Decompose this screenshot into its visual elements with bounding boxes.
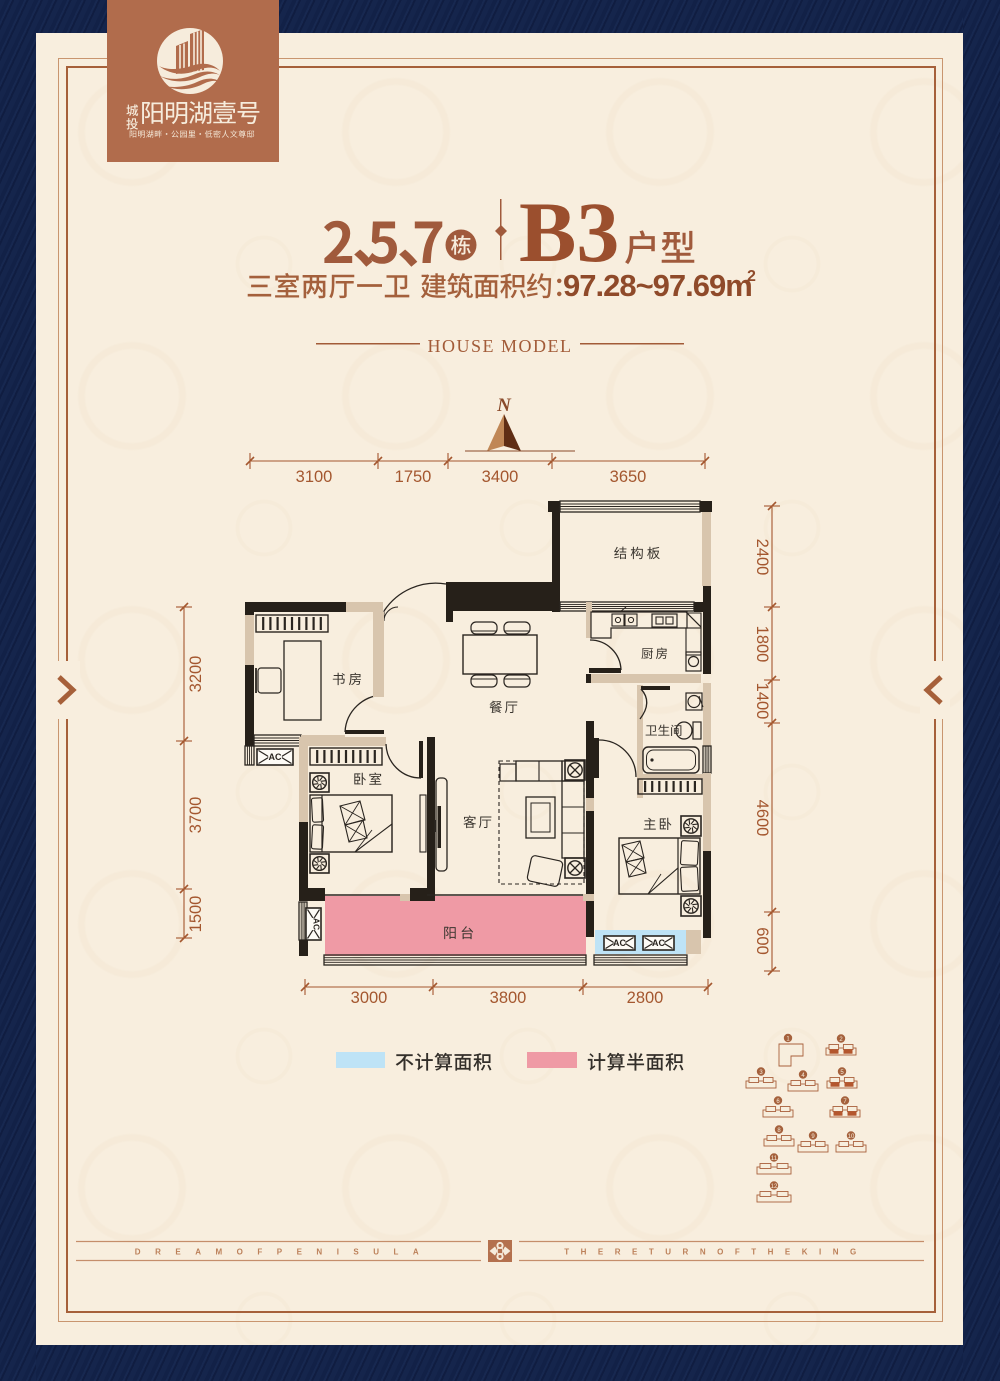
svg-text:1500: 1500 <box>187 896 205 933</box>
svg-text:2: 2 <box>747 268 756 285</box>
svg-text:AC: AC <box>652 938 665 948</box>
svg-text:12: 12 <box>771 1184 778 1190</box>
svg-text:B3: B3 <box>519 184 619 280</box>
svg-text:AC: AC <box>312 918 322 930</box>
svg-text:3650: 3650 <box>610 468 647 486</box>
svg-text:4600: 4600 <box>753 800 771 837</box>
svg-text:THERETURNOFTHEKING: THERETURNOFTHEKING <box>564 1248 867 1257</box>
svg-text:1800: 1800 <box>753 626 771 663</box>
svg-text:1750: 1750 <box>395 468 432 486</box>
svg-text:3000: 3000 <box>351 989 388 1007</box>
svg-text:600: 600 <box>753 927 771 955</box>
svg-text:97.28~97.69m: 97.28~97.69m <box>563 268 752 303</box>
svg-text:3800: 3800 <box>490 989 527 1007</box>
svg-text:AC: AC <box>269 752 282 762</box>
svg-text:10: 10 <box>848 1134 855 1140</box>
svg-text:HOUSE MODEL: HOUSE MODEL <box>428 336 573 356</box>
svg-text:11: 11 <box>771 1156 778 1162</box>
svg-text:3400: 3400 <box>482 468 519 486</box>
svg-text:AC: AC <box>613 938 626 948</box>
svg-text:DREAMOFPENISULA: DREAMOFPENISULA <box>135 1248 433 1257</box>
svg-text:N: N <box>496 395 512 416</box>
svg-text:2800: 2800 <box>627 989 664 1007</box>
svg-text:2400: 2400 <box>753 539 771 576</box>
svg-text:3200: 3200 <box>187 656 205 693</box>
svg-text:3700: 3700 <box>187 797 205 834</box>
svg-text:1400: 1400 <box>753 683 771 720</box>
svg-text:3100: 3100 <box>296 468 333 486</box>
